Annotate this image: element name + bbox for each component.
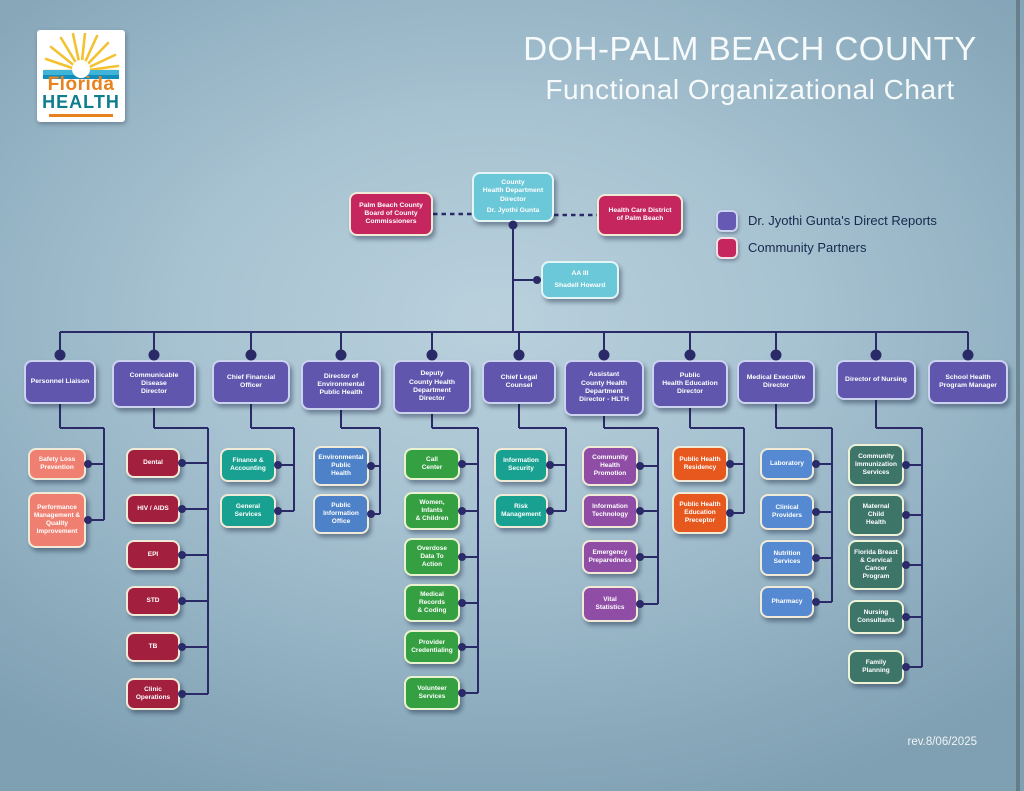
org-node-chief-financial: Chief Financial Officer — [212, 360, 290, 404]
org-node-label: Director of Nursing — [845, 376, 907, 384]
org-node-information: Information Technology — [582, 494, 638, 528]
org-node-label: Director of Environmental Public Health — [317, 373, 364, 398]
org-node-clinical: Clinical Providers — [760, 494, 814, 530]
org-node-label: Women, Infants & Children — [416, 499, 449, 523]
org-chart-page: Florida HEALTH DOH-PALM BEACH COUNTY Fun… — [0, 0, 1024, 791]
org-node-label: Chief Legal Counsel — [501, 374, 538, 391]
org-node-label: Chief Financial Officer — [227, 374, 275, 391]
org-node-label: Public Health Education Preceptor — [679, 501, 720, 525]
org-node-personnel-liaison: Personnel Liaison — [24, 360, 96, 404]
org-node-label: Information Security — [503, 457, 539, 473]
org-node-label: Nutrition Services — [773, 550, 800, 566]
org-node-label: Nursing Consultants — [857, 609, 895, 625]
org-node-clinic: Clinic Operations — [126, 678, 180, 710]
org-node-vital: Vital Statistics — [582, 586, 638, 622]
org-node-label: Vital Statistics — [596, 596, 625, 612]
org-node-label: Public Health Residency — [679, 456, 720, 472]
org-node-performance: Performance Management & Quality Improve… — [28, 492, 86, 548]
org-node-aa-iii-shadell-howard: AA IIIShadell Howard — [541, 261, 619, 299]
org-node-label: Overdose Data To Action — [417, 545, 447, 569]
org-node-safety-loss: Safety Loss Prevention — [28, 448, 86, 480]
org-node-palm-beach-county: Palm Beach County Board of County Commis… — [349, 192, 433, 236]
org-node-provider: Provider Credentialing — [404, 630, 460, 664]
org-node-maternal: Maternal Child Health — [848, 494, 904, 536]
org-node-laboratory: Laboratory — [760, 448, 814, 480]
org-node-label: Community Immunization Services — [855, 453, 897, 477]
org-node-florida-breast: Florida Breast & Cervical Cancer Program — [848, 540, 904, 590]
org-node-label: Safety Loss Prevention — [39, 456, 76, 472]
org-node-finance: Finance & Accounting — [220, 448, 276, 482]
org-node-community: Community Health Promotion — [582, 446, 638, 486]
org-node-community: Community Immunization Services — [848, 444, 904, 486]
org-node-hiv-aids: HIV / AIDS — [126, 494, 180, 524]
org-node-risk: Risk Management — [494, 494, 548, 528]
org-node-communicable: Communicable Disease Director — [112, 360, 196, 408]
org-node-pharmacy: Pharmacy — [760, 586, 814, 618]
org-node-general: General Services — [220, 494, 276, 528]
org-node-overdose: Overdose Data To Action — [404, 538, 460, 576]
org-node-deputy: Deputy County Health Department Director — [393, 360, 471, 414]
org-node-std: STD — [126, 586, 180, 616]
org-node-label: Medical Executive Director — [747, 374, 806, 391]
org-node-label: School Health Program Manager — [939, 374, 997, 391]
org-node-label: Florida Breast & Cervical Cancer Program — [854, 549, 898, 581]
org-nodes-layer: County Health Department DirectorDr. Jyo… — [0, 0, 1024, 791]
org-node-director-of-nursing: Director of Nursing — [836, 360, 916, 400]
org-node-label: Finance & Accounting — [230, 457, 266, 473]
org-node-label: HIV / AIDS — [137, 505, 169, 513]
org-node-medical: Medical Records & Coding — [404, 584, 460, 622]
org-node-label: TB — [149, 643, 158, 651]
org-node-person-name: Dr. Jyothi Gunta — [487, 207, 540, 215]
org-node-label: Community Health Promotion — [592, 454, 628, 478]
org-node-public-health: Public Health Education Preceptor — [672, 492, 728, 534]
org-node-label: Laboratory — [770, 460, 804, 468]
org-node-label: Pharmacy — [771, 598, 802, 606]
org-node-label: Volunteer Services — [417, 685, 447, 701]
org-node-medical-executive: Medical Executive Director — [737, 360, 815, 404]
org-node-label: Personnel Liaison — [31, 378, 90, 386]
org-node-nutrition: Nutrition Services — [760, 540, 814, 576]
org-node-chief-legal: Chief Legal Counsel — [482, 360, 556, 404]
org-node-public-health: Public Health Residency — [672, 446, 728, 482]
org-node-label: Performance Management & Quality Improve… — [34, 504, 80, 536]
org-node-public: Public Information Office — [313, 494, 369, 534]
org-node-dental: Dental — [126, 448, 180, 478]
org-node-environmental: Environmental Public Health — [313, 446, 369, 486]
org-node-label: Medical Records & Coding — [418, 591, 447, 615]
org-node-information: Information Security — [494, 448, 548, 482]
org-node-nursing: Nursing Consultants — [848, 600, 904, 634]
org-node-tb: TB — [126, 632, 180, 662]
org-node-label: Clinic Operations — [136, 686, 170, 702]
org-node-assistant: Assistant County Health Department Direc… — [564, 360, 644, 416]
org-node-label: Risk Management — [501, 503, 541, 519]
org-node-label: Provider Credentialing — [411, 639, 453, 655]
org-node-epi: EPI — [126, 540, 180, 570]
org-node-school-health: School Health Program Manager — [928, 360, 1008, 404]
org-node-label: Maternal Child Health — [863, 503, 890, 527]
org-node-label: Clinical Providers — [772, 504, 802, 520]
org-node-call: Call Center — [404, 448, 460, 480]
org-node-health-care-district: Health Care District of Palm Beach — [597, 194, 683, 236]
org-node-label: EPI — [148, 551, 158, 559]
org-node-label: Emergency Preparedness — [589, 549, 632, 565]
org-node-label: Dental — [143, 459, 163, 467]
org-node-director-of: Director of Environmental Public Health — [301, 360, 381, 410]
org-node-label: Deputy County Health Department Director — [409, 370, 455, 403]
org-node-label: Information Technology — [592, 503, 628, 519]
org-node-label: General Services — [235, 503, 262, 519]
org-node-public: Public Health Education Director — [652, 360, 728, 408]
org-node-label: Family Planning — [862, 659, 889, 675]
org-node-volunteer: Volunteer Services — [404, 676, 460, 710]
org-node-label: Health Care District of Palm Beach — [608, 207, 671, 224]
org-node-family: Family Planning — [848, 650, 904, 684]
org-node-label: Public Health Education Director — [662, 372, 718, 397]
org-node-label: Palm Beach County Board of County Commis… — [359, 202, 423, 227]
org-node-label: Assistant County Health Department Direc… — [579, 371, 629, 404]
org-node-label: STD — [147, 597, 160, 605]
org-node-label: County Health Department Director — [483, 179, 543, 204]
org-node-women: Women, Infants & Children — [404, 492, 460, 530]
org-node-emergency: Emergency Preparedness — [582, 540, 638, 574]
org-node-label: Public Information Office — [323, 502, 359, 526]
org-node-label: AA III — [571, 270, 588, 278]
org-node-county-dr-jyothi-gunta: County Health Department DirectorDr. Jyo… — [472, 172, 554, 222]
org-node-label: Communicable Disease Director — [130, 372, 179, 397]
org-node-label: Call Center — [422, 456, 443, 472]
org-node-person-name: Shadell Howard — [555, 282, 606, 290]
org-node-label: Environmental Public Health — [318, 454, 363, 478]
